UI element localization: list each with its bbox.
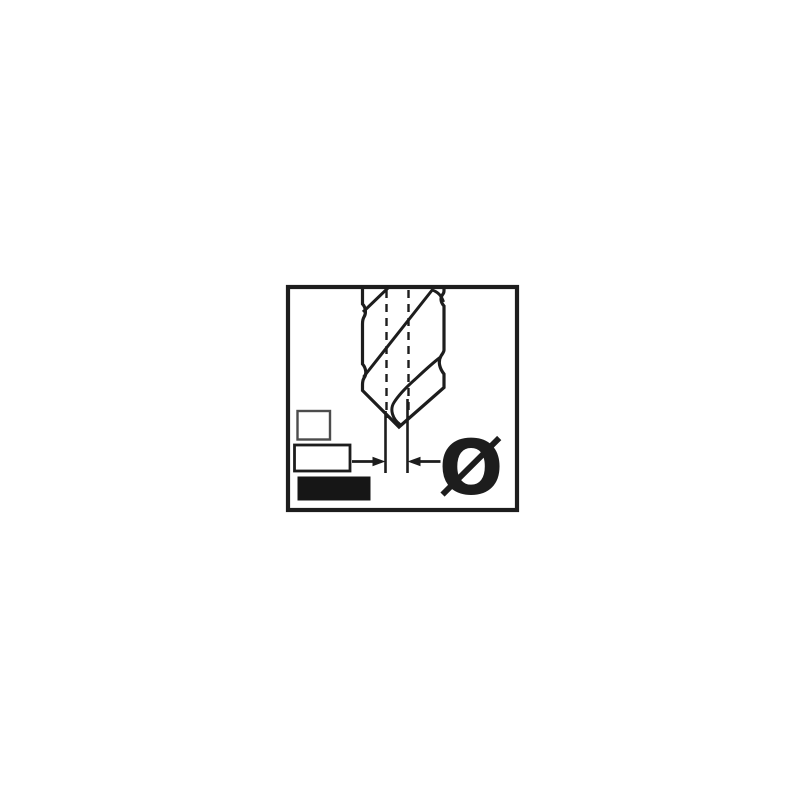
dimension-arrowhead-right [408,457,421,466]
page-background: Ø [0,0,800,800]
diameter-symbol: Ø [439,423,504,512]
flute-line-upper [363,288,389,313]
size-swatches [295,411,371,500]
swatch-medium [295,445,351,471]
point-facet-curve [392,358,440,425]
swatch-small [298,411,331,440]
drill-diameter-diagram: Ø [0,0,800,800]
dimension-arrowhead-left [373,457,386,466]
swatch-large [298,477,370,500]
drill-bit-drawing [363,288,445,428]
dimension-callout: Ø [352,399,503,512]
flute-edge-curl [432,290,444,302]
drill-outline [363,288,445,427]
